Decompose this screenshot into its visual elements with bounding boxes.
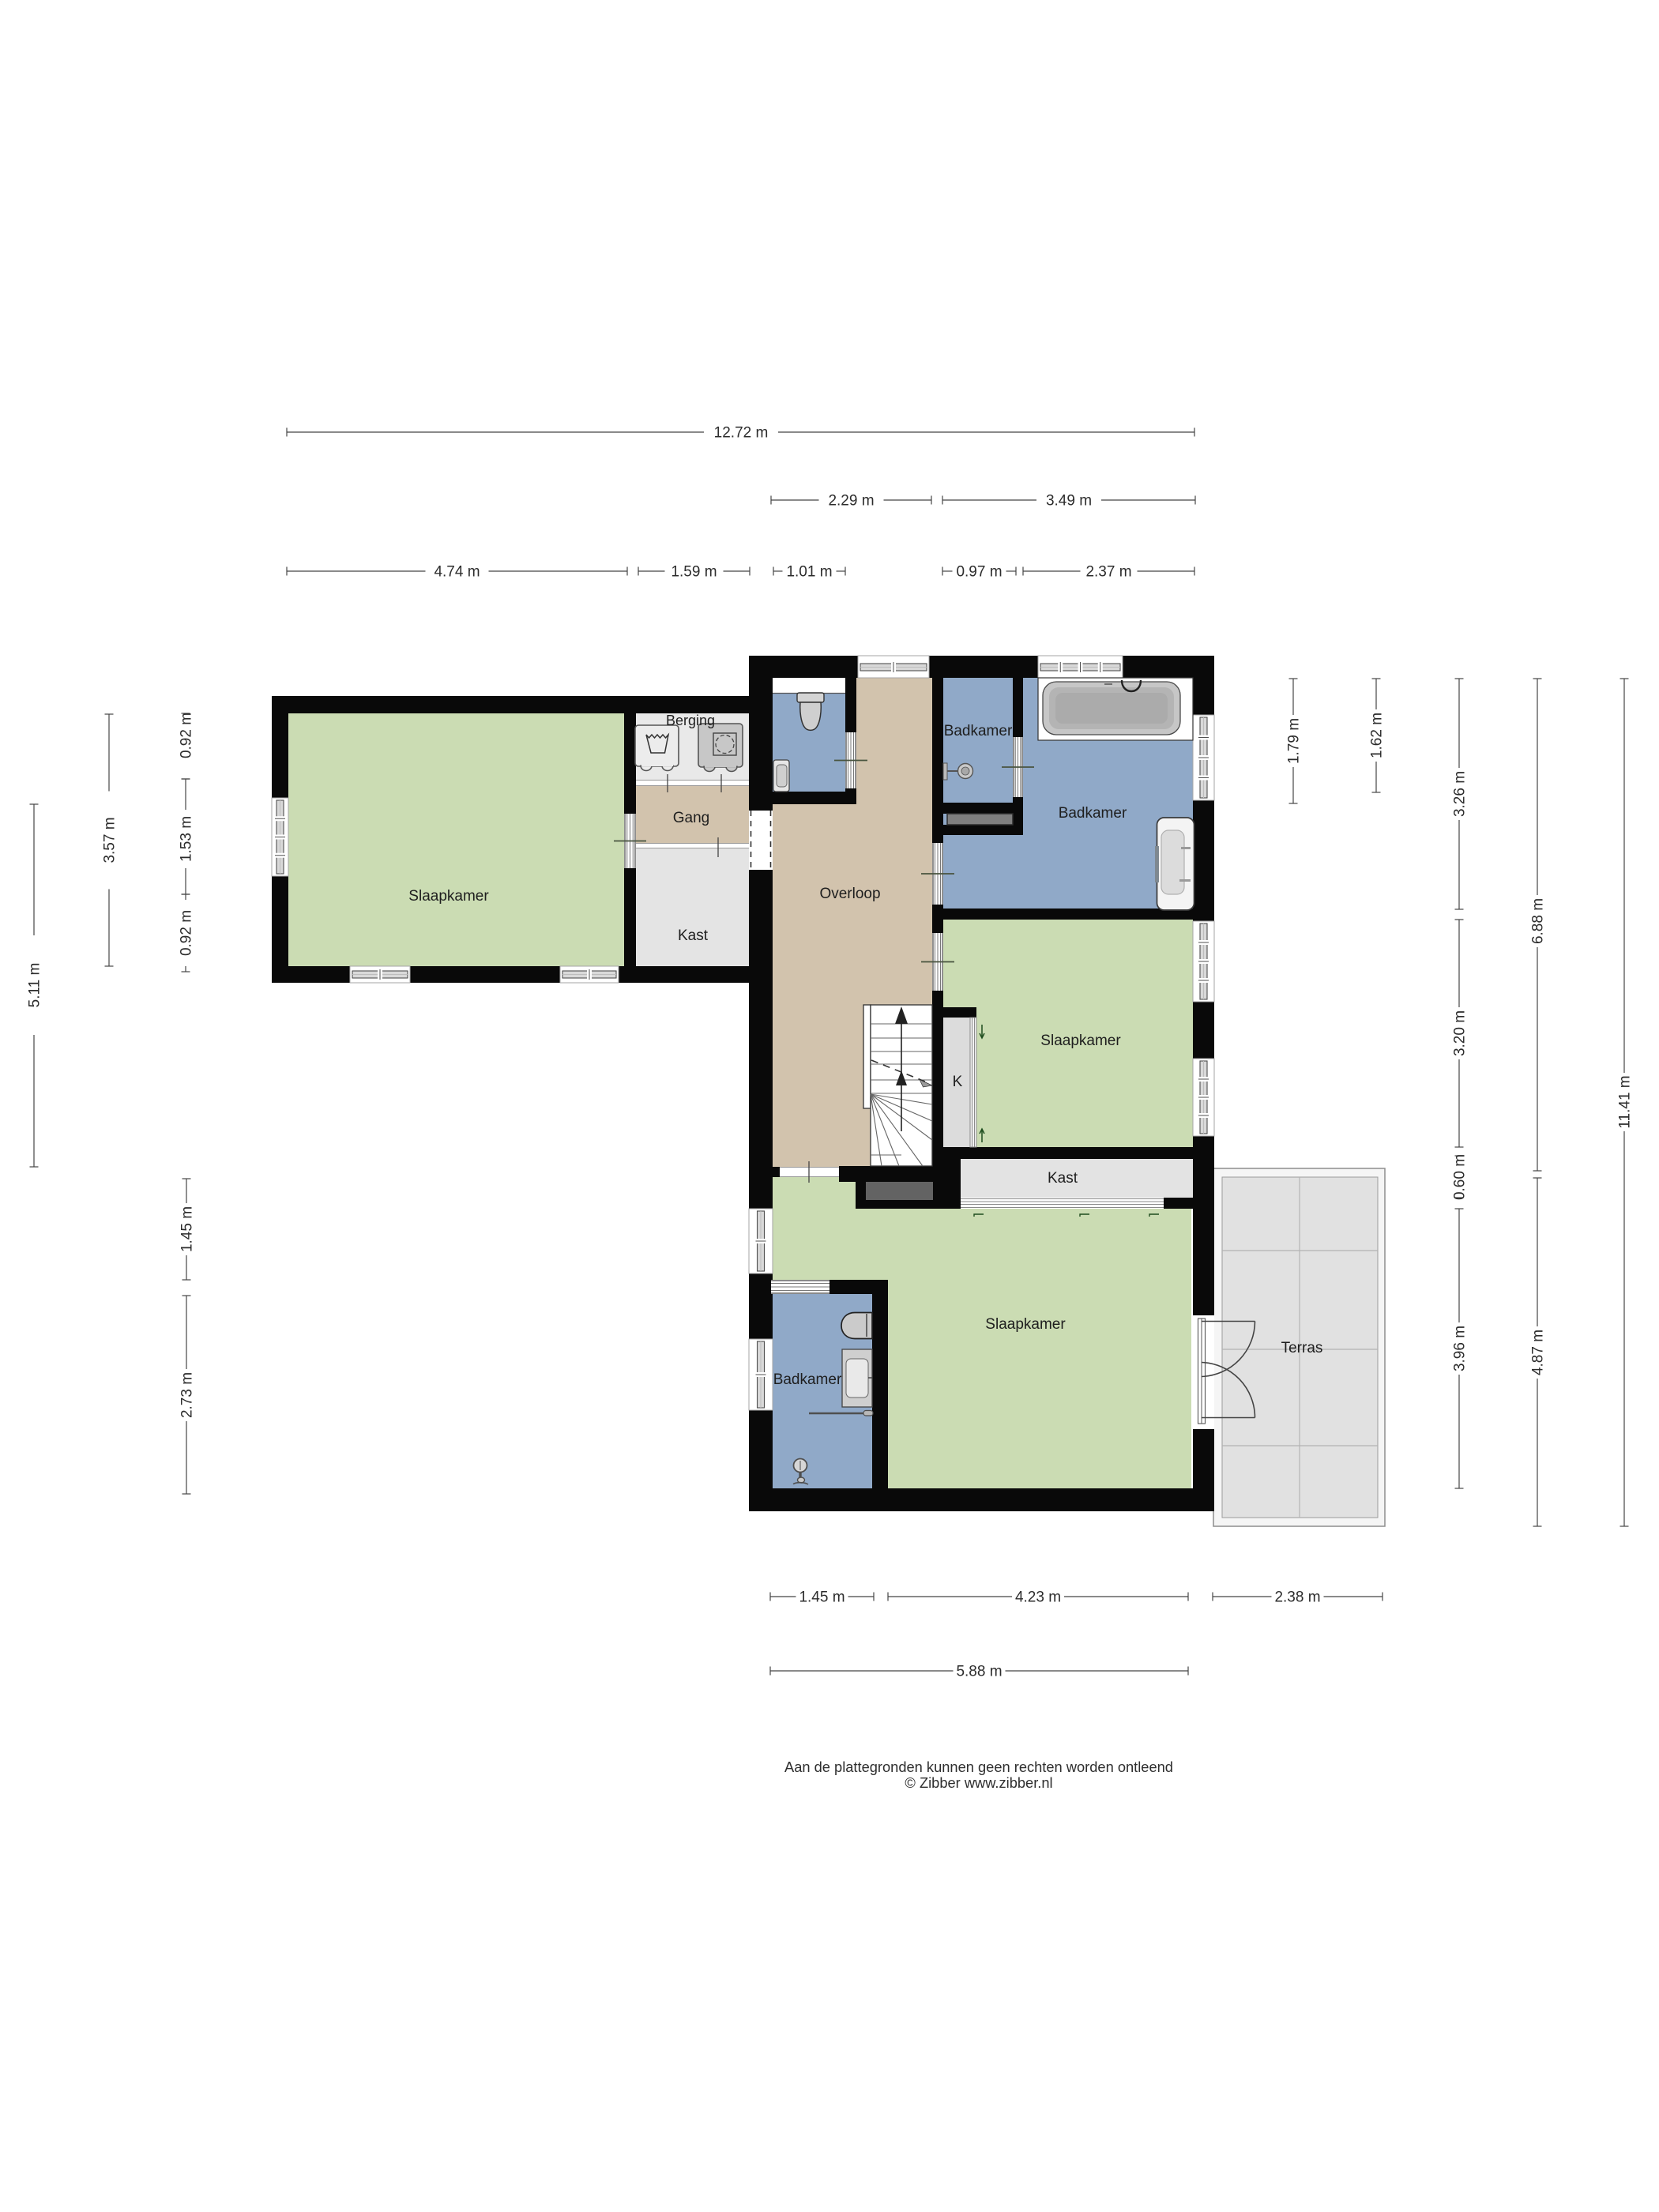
svg-text:5.11 m: 5.11 m bbox=[27, 963, 43, 1008]
svg-text:1.59 m: 1.59 m bbox=[671, 564, 717, 581]
svg-text:1.45 m: 1.45 m bbox=[179, 1206, 196, 1252]
svg-text:0.92 m: 0.92 m bbox=[179, 910, 195, 956]
svg-text:0.92 m: 0.92 m bbox=[179, 713, 195, 758]
svg-text:4.74 m: 4.74 m bbox=[434, 564, 480, 581]
svg-text:2.73 m: 2.73 m bbox=[179, 1372, 196, 1418]
svg-text:Overloop: Overloop bbox=[819, 886, 880, 902]
svg-text:Kast: Kast bbox=[1048, 1170, 1078, 1187]
svg-text:Aan de plattegronden kunnen ge: Aan de plattegronden kunnen geen rechten… bbox=[784, 1759, 1173, 1775]
svg-text:K: K bbox=[953, 1074, 963, 1090]
svg-text:3.26 m: 3.26 m bbox=[1452, 771, 1469, 817]
svg-text:3.96 m: 3.96 m bbox=[1452, 1326, 1469, 1371]
svg-text:11.41 m: 11.41 m bbox=[1617, 1075, 1634, 1128]
svg-text:0.97 m: 0.97 m bbox=[956, 564, 1002, 581]
svg-text:Badkamer: Badkamer bbox=[944, 723, 1013, 739]
svg-text:4.23 m: 4.23 m bbox=[1015, 1589, 1061, 1606]
svg-text:2.29 m: 2.29 m bbox=[828, 493, 874, 510]
svg-text:Slaapkamer: Slaapkamer bbox=[408, 888, 489, 905]
svg-text:Gang: Gang bbox=[673, 810, 709, 826]
svg-text:3.49 m: 3.49 m bbox=[1046, 493, 1092, 510]
svg-text:0.60 m: 0.60 m bbox=[1452, 1154, 1469, 1200]
svg-text:Badkamer: Badkamer bbox=[773, 1371, 842, 1388]
svg-text:1.53 m: 1.53 m bbox=[179, 816, 195, 862]
svg-text:1.01 m: 1.01 m bbox=[786, 564, 832, 581]
svg-text:12.72 m: 12.72 m bbox=[714, 425, 769, 442]
svg-text:Slaapkamer: Slaapkamer bbox=[985, 1316, 1066, 1333]
svg-text:3.57 m: 3.57 m bbox=[102, 817, 118, 863]
svg-text:Kast: Kast bbox=[678, 927, 709, 944]
svg-text:2.37 m: 2.37 m bbox=[1085, 564, 1131, 581]
svg-text:Slaapkamer: Slaapkamer bbox=[1040, 1033, 1121, 1049]
svg-text:6.88 m: 6.88 m bbox=[1530, 898, 1547, 944]
svg-text:2.38 m: 2.38 m bbox=[1274, 1589, 1320, 1606]
svg-text:© Zibber www.zibber.nl: © Zibber www.zibber.nl bbox=[905, 1774, 1052, 1791]
svg-text:1.45 m: 1.45 m bbox=[799, 1589, 845, 1606]
svg-text:Terras: Terras bbox=[1281, 1340, 1323, 1356]
svg-text:4.87 m: 4.87 m bbox=[1530, 1330, 1547, 1375]
svg-text:Berging: Berging bbox=[666, 713, 715, 728]
svg-text:1.62 m: 1.62 m bbox=[1369, 713, 1386, 758]
svg-text:Badkamer: Badkamer bbox=[1059, 805, 1127, 822]
svg-text:5.88 m: 5.88 m bbox=[956, 1664, 1002, 1680]
svg-text:1.79 m: 1.79 m bbox=[1286, 718, 1303, 764]
svg-text:3.20 m: 3.20 m bbox=[1452, 1010, 1469, 1056]
